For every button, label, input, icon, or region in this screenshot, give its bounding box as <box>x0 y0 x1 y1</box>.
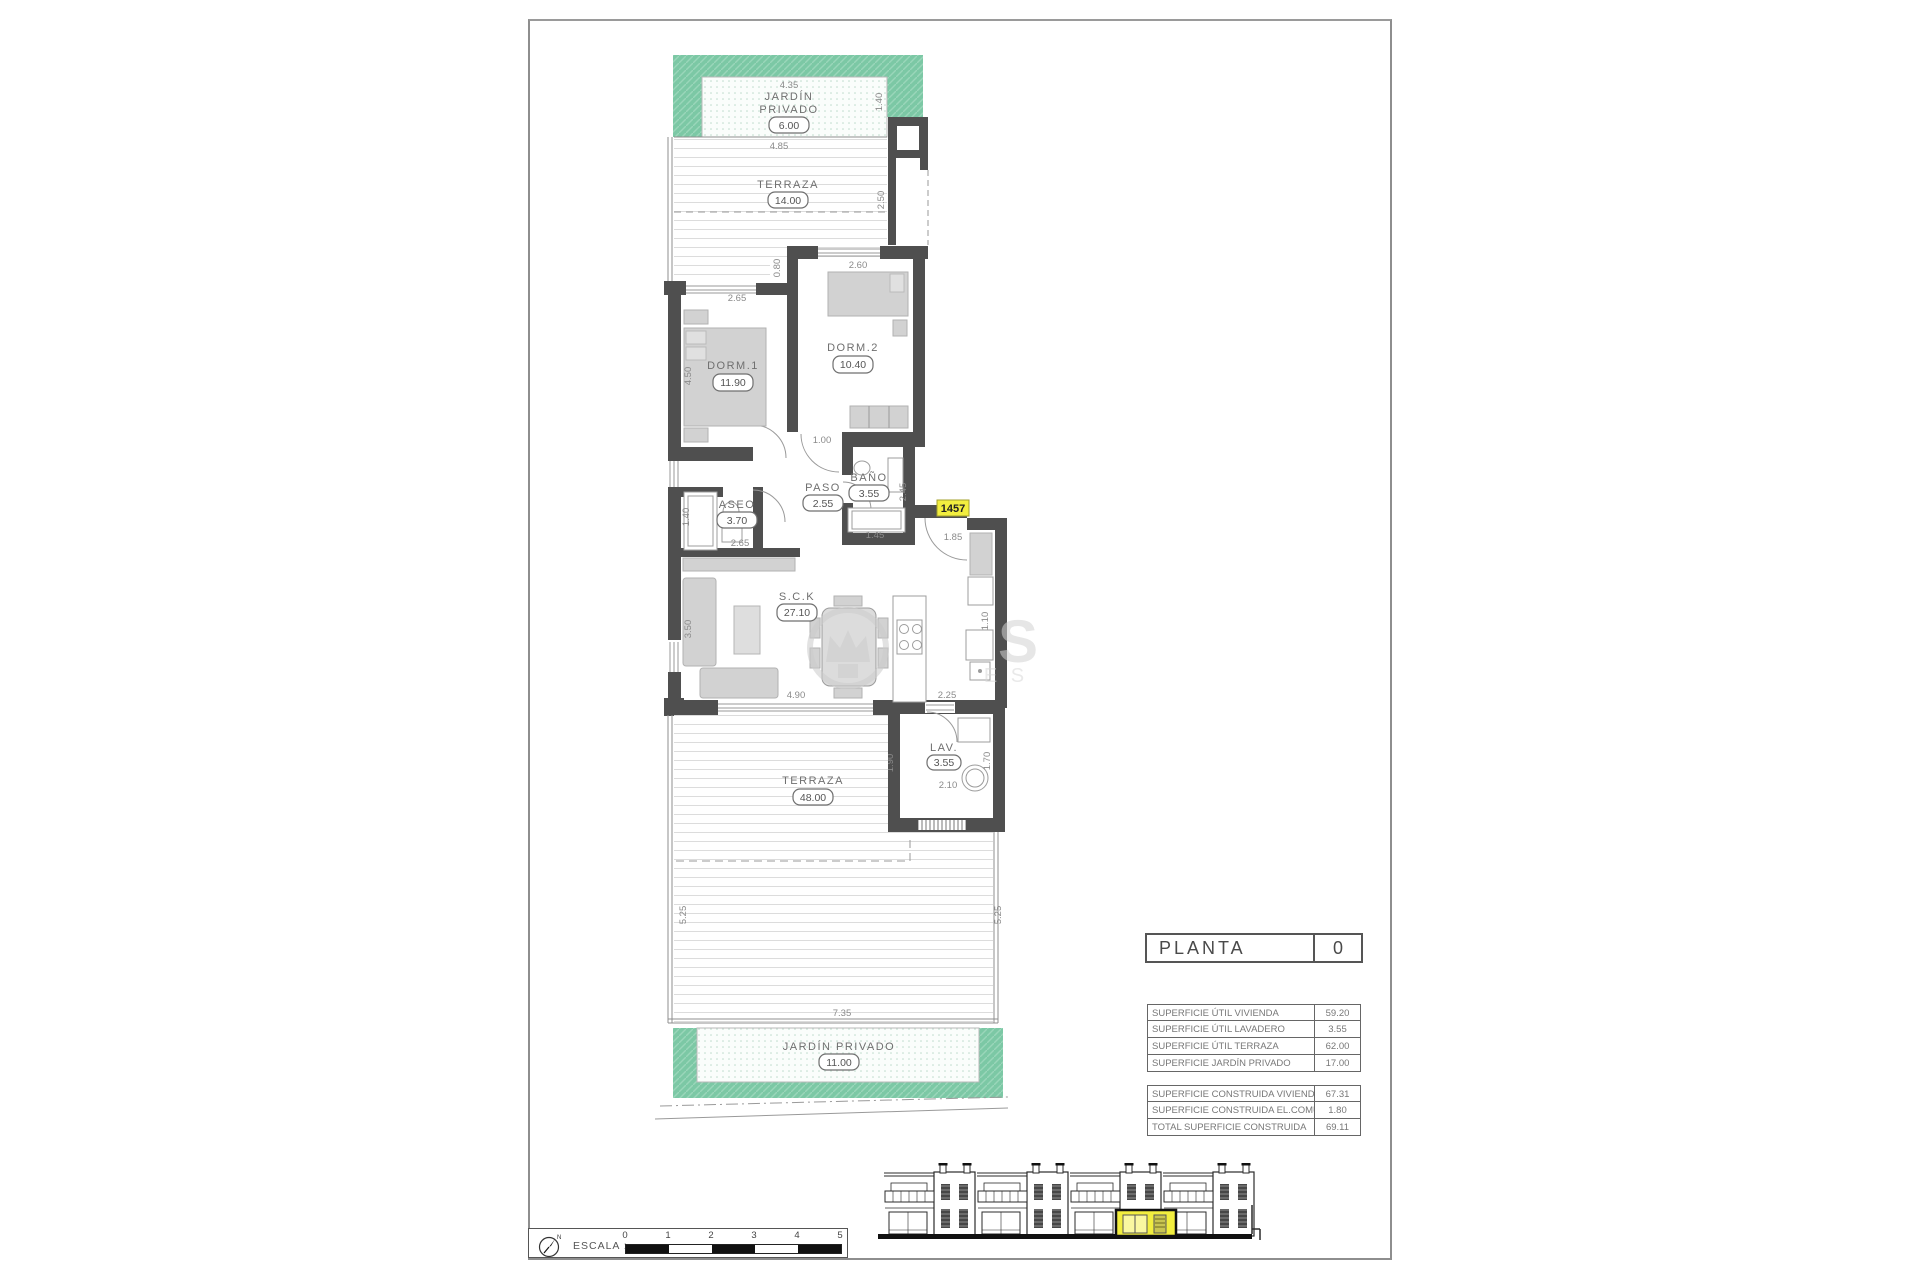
area-table-group-2: SUPERFICIE CONSTRUIDA VIVIENDA 67.31 SUP… <box>1147 1085 1361 1136</box>
room-label-dorm2: DORM.2 <box>827 342 879 354</box>
row-label: SUPERFICIE ÚTIL VIVIENDA <box>1148 1005 1314 1020</box>
table-row: TOTAL SUPERFICIE CONSTRUIDA 69.11 <box>1147 1119 1361 1136</box>
svg-text:2.25: 2.25 <box>938 690 957 701</box>
svg-text:2.65: 2.65 <box>728 293 747 304</box>
row-label: SUPERFICIE JARDÍN PRIVADO <box>1148 1055 1314 1071</box>
row-value: 17.00 <box>1314 1055 1360 1071</box>
scale-tick: 2 <box>705 1230 717 1241</box>
svg-text:0.80: 0.80 <box>772 259 783 278</box>
svg-text:7.35: 7.35 <box>833 1008 852 1019</box>
svg-text:2.45: 2.45 <box>898 483 909 502</box>
scale-tick: 5 <box>834 1230 846 1241</box>
dim-4-35: 4.35 <box>780 80 799 91</box>
highlighted-unit <box>1116 1210 1176 1236</box>
room-label-dorm1: DORM.1 <box>707 360 759 372</box>
table-row: SUPERFICIE ÚTIL VIVIENDA 59.20 <box>1147 1004 1361 1021</box>
svg-text:4.50: 4.50 <box>683 367 694 386</box>
table-row: SUPERFICIE CONSTRUIDA EL.COMUNES 1.80 <box>1147 1102 1361 1119</box>
room-label-jardin-top-1: JARDÍN <box>765 90 814 103</box>
table-row: SUPERFICIE CONSTRUIDA VIVIENDA 67.31 <box>1147 1085 1361 1102</box>
row-value: 69.11 <box>1314 1119 1360 1135</box>
area-value-terraza-top: 14.00 <box>775 195 801 207</box>
svg-text:1.45: 1.45 <box>866 530 885 541</box>
title-block: PLANTA 0 <box>1145 933 1363 963</box>
row-value: 62.00 <box>1314 1038 1360 1054</box>
watermark-sub: E S <box>984 665 1028 687</box>
area-table-group-1: SUPERFICIE ÚTIL VIVIENDA 59.20 SUPERFICI… <box>1147 1004 1361 1072</box>
scale-tick: 0 <box>619 1230 631 1241</box>
scale-label: ESCALA : <box>573 1240 628 1252</box>
row-label: SUPERFICIE CONSTRUIDA EL.COMUNES <box>1148 1102 1314 1118</box>
svg-text:5.25: 5.25 <box>993 906 1004 925</box>
area-value-paso: 2.55 <box>813 498 834 510</box>
svg-text:4.90: 4.90 <box>787 690 806 701</box>
row-value: 67.31 <box>1314 1086 1360 1101</box>
row-label: SUPERFICIE ÚTIL TERRAZA <box>1148 1038 1314 1054</box>
dim-4-85: 4.85 <box>770 141 789 152</box>
room-label-lav: LAV. <box>930 742 958 754</box>
garden-top: 4.35 JARDÍN PRIVADO 6.00 1.40 <box>673 55 923 137</box>
table-row: SUPERFICIE ÚTIL TERRAZA 62.00 <box>1147 1038 1361 1055</box>
svg-text:N: N <box>557 1235 561 1241</box>
area-value-dorm2: 10.40 <box>840 359 866 371</box>
row-label: SUPERFICIE ÚTIL LAVADERO <box>1148 1021 1314 1037</box>
area-value-jardin-bottom: 11.00 <box>826 1057 852 1069</box>
svg-text:2.65: 2.65 <box>731 538 750 549</box>
title-block-label: PLANTA <box>1147 935 1313 961</box>
room-label-jardin-top-2: PRIVADO <box>759 104 818 116</box>
scale-bar: N ESCALA : 0 1 2 3 4 5 <box>528 1228 848 1258</box>
stair-column <box>888 117 928 245</box>
svg-text:1.85: 1.85 <box>944 532 963 543</box>
table-row: SUPERFICIE JARDÍN PRIVADO 17.00 <box>1147 1055 1361 1072</box>
row-value: 1.80 <box>1314 1102 1360 1118</box>
floor-plan-drawing: 4.35 JARDÍN PRIVADO 6.00 1.40 4.85 TERRA… <box>0 0 1920 1280</box>
elevation-drawing <box>878 1163 1260 1240</box>
title-block-floor-value: 0 <box>1313 935 1361 961</box>
row-value: 3.55 <box>1314 1021 1360 1037</box>
svg-text:3.50: 3.50 <box>683 620 694 639</box>
room-label-terraza-bottom: TERRAZA <box>782 775 844 787</box>
room-label-sck: S.C.K <box>779 591 815 603</box>
room-label-bano: BAÑO <box>850 471 887 484</box>
room-label-jardin-bottom: JARDÍN PRIVADO <box>783 1040 895 1053</box>
area-value-lav: 3.55 <box>934 757 955 769</box>
table-row: SUPERFICIE ÚTIL LAVADERO 3.55 <box>1147 1021 1361 1038</box>
svg-text:1.10: 1.10 <box>980 612 991 631</box>
row-value: 59.20 <box>1314 1005 1360 1020</box>
scale-bar-segments <box>625 1244 842 1254</box>
scale-tick: 1 <box>662 1230 674 1241</box>
dim-1-40-t: 1.40 <box>874 93 885 112</box>
area-value-aseo: 3.70 <box>727 515 748 527</box>
north-arrow-icon: N <box>537 1233 563 1259</box>
scale-tick: 3 <box>748 1230 760 1241</box>
area-value-jardin-top: 6.00 <box>779 120 800 132</box>
drawing-sheet-page: 4.35 JARDÍN PRIVADO 6.00 1.40 4.85 TERRA… <box>0 0 1920 1280</box>
svg-text:1.70: 1.70 <box>982 752 993 771</box>
room-label-terraza-top: TERRAZA <box>757 179 819 191</box>
dim-2-50: 2.50 <box>876 191 887 210</box>
scale-tick: 4 <box>791 1230 803 1241</box>
area-value-terraza-bottom: 48.00 <box>800 792 826 804</box>
area-value-sck: 27.10 <box>784 607 810 619</box>
unit-number-badge: 1457 <box>937 500 969 516</box>
room-label-paso: PASO <box>805 482 841 494</box>
area-value-dorm1: 11.90 <box>720 377 746 389</box>
row-label: SUPERFICIE CONSTRUIDA VIVIENDA <box>1148 1086 1314 1101</box>
area-value-bano: 3.55 <box>859 488 880 500</box>
svg-text:2.60: 2.60 <box>849 260 868 271</box>
svg-text:2.10: 2.10 <box>939 780 958 791</box>
room-label-aseo: ASEO <box>719 499 756 511</box>
garden-bottom: JARDÍN PRIVADO 11.00 <box>655 1028 1008 1119</box>
svg-text:5.25: 5.25 <box>678 906 689 925</box>
svg-text:1.40: 1.40 <box>681 508 692 527</box>
svg-text:1.00: 1.00 <box>813 435 832 446</box>
row-label: TOTAL SUPERFICIE CONSTRUIDA <box>1148 1119 1314 1135</box>
unit-number: 1457 <box>941 503 965 515</box>
